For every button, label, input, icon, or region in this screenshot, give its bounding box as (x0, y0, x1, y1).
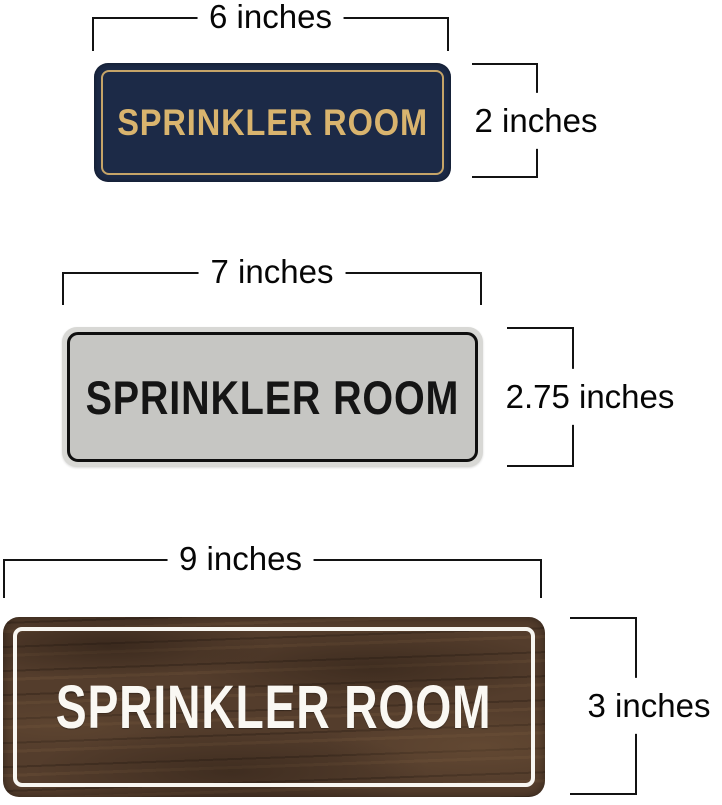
height-dimension-bracket-silver: 2.75 inches (507, 327, 574, 467)
width-dimension-label-navy: 6 inches (197, 0, 344, 37)
height-dimension-label-silver: 2.75 inches (500, 369, 681, 425)
width-dimension-bracket-silver: 7 inches (62, 272, 482, 305)
sign-silver-border: SPRINKLER ROOM (67, 332, 478, 462)
sign-walnut-border: SPRINKLER ROOM (13, 627, 535, 787)
sign-silver-title: SPRINKLER ROOM (86, 374, 460, 421)
width-dimension-label-silver: 7 inches (199, 252, 346, 292)
sign-size-comparison-image: 6 inches SPRINKLER ROOM 2 inches 7 inche… (0, 0, 722, 805)
sign-navy-title: SPRINKLER ROOM (117, 104, 428, 141)
height-dimension-label-walnut: 3 inches (582, 678, 717, 734)
sign-navy: SPRINKLER ROOM (94, 63, 451, 182)
width-dimension-bracket-navy: 6 inches (92, 17, 449, 51)
width-dimension-bracket-walnut: 9 inches (3, 559, 542, 598)
sign-walnut: SPRINKLER ROOM (3, 617, 545, 797)
sign-navy-border: SPRINKLER ROOM (101, 70, 444, 175)
sign-silver: SPRINKLER ROOM (62, 327, 483, 467)
width-dimension-label-walnut: 9 inches (167, 539, 314, 579)
height-dimension-label-navy: 2 inches (469, 92, 604, 148)
height-dimension-bracket-navy: 2 inches (472, 63, 538, 178)
sign-walnut-title: SPRINKLER ROOM (56, 677, 492, 738)
height-dimension-bracket-walnut: 3 inches (570, 617, 637, 795)
